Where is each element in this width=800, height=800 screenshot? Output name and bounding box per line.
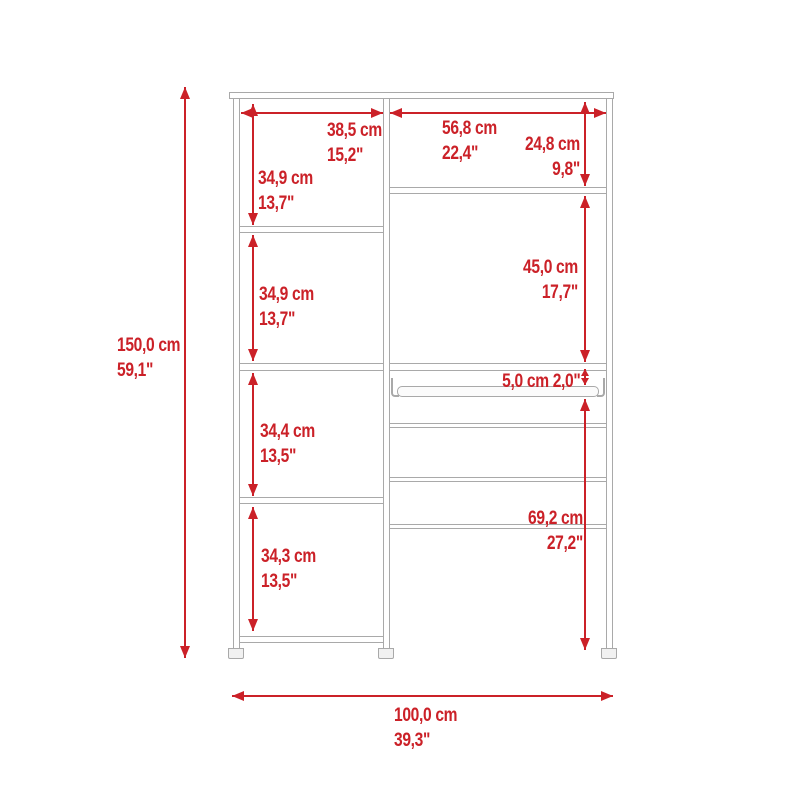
right-foot: [601, 648, 617, 659]
left-section-1-in: 13,7": [258, 191, 313, 216]
left-section-1-cm: 34,9 cm: [258, 166, 313, 191]
right-bottom-section-arrow: [584, 399, 586, 650]
right-top-section-label: 24,8 cm 9,8": [525, 132, 580, 182]
right-column-width-arrow: [390, 112, 606, 114]
left-column-width-in: 15,2": [327, 143, 382, 168]
right-bottom-section-label: 69,2 cm 27,2": [528, 506, 583, 556]
left-shelf-3: [239, 497, 385, 504]
left-section-3-label: 34,4 cm 13,5": [260, 419, 315, 469]
overall-height-label: 150,0 cm 59,1": [117, 333, 180, 383]
rod-clearance-text: 5,0 cm 2,0": [502, 369, 580, 394]
center-foot: [378, 648, 394, 659]
left-section-2-arrow: [252, 235, 254, 361]
left-section-3-cm: 34,4 cm: [260, 419, 315, 444]
overall-height-cm: 150,0 cm: [117, 333, 180, 358]
right-middle-section-cm: 45,0 cm: [523, 255, 578, 280]
right-column-width-cm: 56,8 cm: [442, 116, 497, 141]
overall-width-arrow: [232, 695, 613, 697]
left-shelf-1: [239, 226, 385, 233]
right-side-panel: [606, 97, 613, 649]
left-column-width-cm: 38,5 cm: [327, 118, 382, 143]
left-section-2-cm: 34,9 cm: [259, 282, 314, 307]
left-section-2-label: 34,9 cm 13,7": [259, 282, 314, 332]
overall-width-cm: 100,0 cm: [394, 703, 457, 728]
overall-height-in: 59,1": [117, 358, 180, 383]
dimension-diagram: 150,0 cm 59,1" 100,0 cm 39,3" 38,5 cm 15…: [0, 0, 800, 800]
right-bottom-section-in: 27,2": [528, 531, 583, 556]
right-middle-section-arrow: [584, 196, 586, 362]
left-foot: [228, 648, 244, 659]
left-section-1-label: 34,9 cm 13,7": [258, 166, 313, 216]
left-section-1-arrow: [252, 104, 254, 225]
left-section-4-label: 34,3 cm 13,5": [261, 544, 316, 594]
right-top-section-cm: 24,8 cm: [525, 132, 580, 157]
rod-clearance-arrow: [584, 369, 586, 385]
right-top-section-in: 9,8": [525, 157, 580, 182]
right-rail-1: [389, 423, 607, 428]
overall-width-in: 39,3": [394, 728, 457, 753]
left-section-4-cm: 34,3 cm: [261, 544, 316, 569]
left-bottom-shelf: [239, 636, 385, 643]
right-rail-2: [389, 477, 607, 482]
left-column-width-arrow: [241, 112, 383, 114]
left-section-3-in: 13,5": [260, 444, 315, 469]
left-side-panel: [233, 97, 240, 649]
top-panel: [229, 92, 614, 99]
right-top-shelf: [389, 187, 607, 194]
right-top-section-arrow: [584, 102, 586, 186]
overall-width-label: 100,0 cm 39,3": [394, 703, 457, 753]
right-middle-section-in: 17,7": [523, 280, 578, 305]
rod-clearance-label: 5,0 cm 2,0": [502, 369, 580, 394]
left-section-2-in: 13,7": [259, 307, 314, 332]
left-section-3-arrow: [252, 373, 254, 496]
left-section-4-arrow: [252, 507, 254, 631]
left-column-width-label: 38,5 cm 15,2": [327, 118, 382, 168]
right-column-width-in: 22,4": [442, 141, 497, 166]
left-section-4-in: 13,5": [261, 569, 316, 594]
right-column-width-label: 56,8 cm 22,4": [442, 116, 497, 166]
overall-height-arrow: [184, 87, 186, 658]
right-bottom-section-cm: 69,2 cm: [528, 506, 583, 531]
center-divider-panel: [383, 97, 390, 649]
right-middle-section-label: 45,0 cm 17,7": [523, 255, 578, 305]
